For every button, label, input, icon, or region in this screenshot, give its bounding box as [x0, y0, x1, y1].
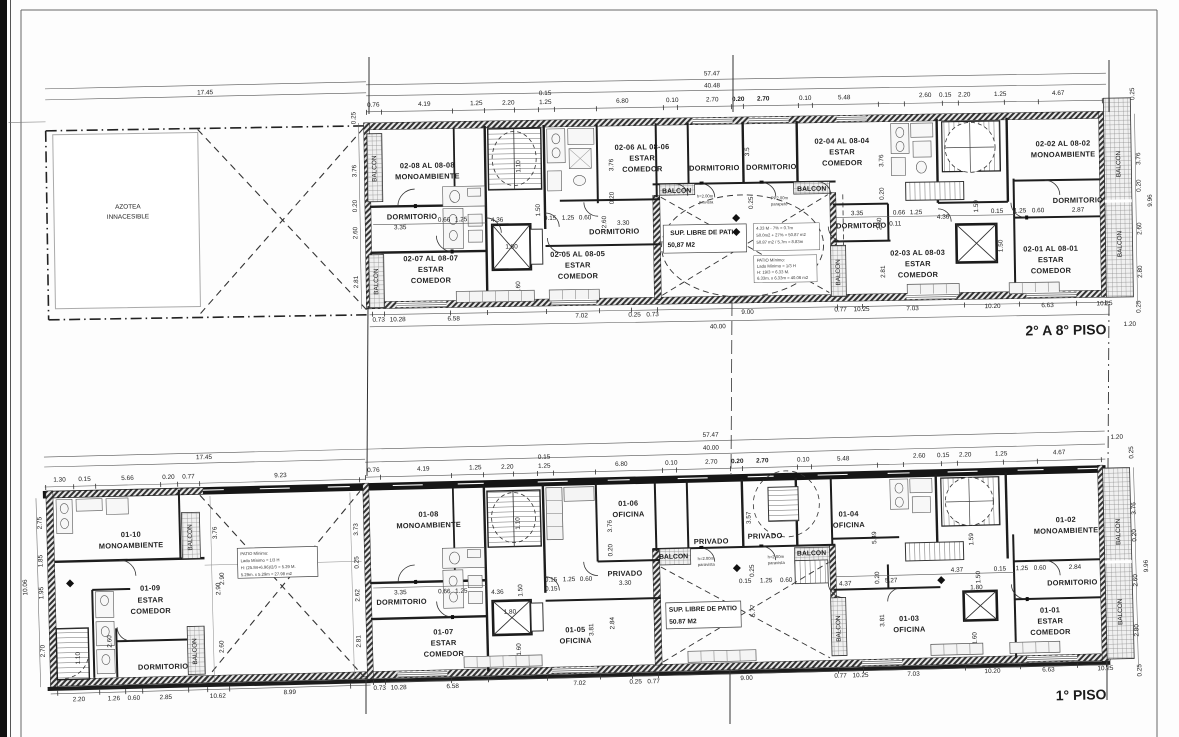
svg-text:PRIVADO: PRIVADO [694, 536, 729, 546]
svg-text:BALCON: BALCON [659, 553, 688, 561]
svg-text:1.50: 1.50 [997, 239, 1004, 252]
svg-text:2.60: 2.60 [1136, 222, 1143, 235]
svg-text:h=2.00m: h=2.00m [697, 193, 714, 198]
svg-text:H: 19/3 = 6.33 M.: H: 19/3 = 6.33 M. [757, 269, 789, 275]
svg-text:2.60: 2.60 [106, 635, 113, 648]
svg-text:3.30: 3.30 [617, 220, 630, 227]
svg-text:BALCON: BALCON [797, 186, 826, 193]
svg-text:2.80: 2.80 [1137, 265, 1144, 278]
svg-text:0.10: 0.10 [666, 97, 679, 104]
svg-text:0.15: 0.15 [991, 208, 1004, 215]
svg-text:1.20: 1.20 [1124, 321, 1137, 328]
svg-text:1.60: 1.60 [516, 643, 523, 656]
svg-text:4.37: 4.37 [951, 567, 964, 574]
svg-text:0.15: 0.15 [545, 576, 558, 583]
svg-text:50.0m2 + 27% = 50.87 m2: 50.0m2 + 27% = 50.87 m2 [756, 232, 806, 238]
svg-text:3.76: 3.76 [1135, 152, 1142, 165]
svg-text:0.20: 0.20 [731, 458, 744, 465]
svg-text:1.25: 1.25 [455, 216, 468, 223]
svg-text:0.77: 0.77 [647, 678, 660, 685]
svg-text:3.30: 3.30 [619, 580, 632, 587]
svg-text:1.59: 1.59 [968, 533, 975, 546]
svg-text:1.20: 1.20 [1110, 434, 1123, 441]
svg-text:0.60: 0.60 [1034, 565, 1047, 572]
svg-text:0.20: 0.20 [879, 187, 886, 200]
svg-text:57.47: 57.47 [704, 70, 721, 77]
svg-text:3.76: 3.76 [607, 519, 614, 532]
svg-text:SUP. LIBRE DE PATIO: SUP. LIBRE DE PATIO [670, 229, 738, 237]
svg-text:2° A 8° PISO: 2° A 8° PISO [1025, 321, 1106, 338]
svg-text:0.77: 0.77 [182, 473, 195, 480]
svg-text:3.81: 3.81 [588, 623, 595, 636]
svg-text:0.25: 0.25 [749, 564, 756, 577]
svg-text:0.25: 0.25 [628, 312, 641, 319]
svg-text:PATIO Mínimo:: PATIO Mínimo: [240, 551, 268, 557]
svg-text:1.59: 1.59 [973, 200, 980, 213]
svg-text:1.25: 1.25 [470, 100, 483, 107]
svg-text:2.20: 2.20 [502, 99, 515, 106]
svg-text:3.35: 3.35 [851, 210, 864, 217]
svg-text:1.80: 1.80 [970, 584, 983, 591]
svg-text:0.15: 0.15 [78, 476, 91, 483]
svg-text:OFICINA: OFICINA [559, 636, 592, 646]
svg-text:10.20: 10.20 [984, 668, 1001, 675]
svg-text:6.80: 6.80 [615, 461, 628, 468]
svg-text:0.10: 0.10 [799, 95, 812, 102]
svg-text:3.76: 3.76 [212, 526, 219, 539]
svg-text:1.10: 1.10 [515, 160, 522, 173]
svg-text:01-06: 01-06 [618, 499, 638, 508]
svg-text:1.10: 1.10 [515, 517, 522, 530]
svg-text:2.70: 2.70 [757, 95, 770, 102]
svg-text:ESTAR: ESTAR [905, 259, 931, 268]
svg-text:1.25: 1.25 [538, 463, 551, 470]
svg-text:10.62: 10.62 [210, 693, 227, 700]
svg-text:1.25: 1.25 [539, 99, 552, 106]
svg-text:paravista: paravista [768, 560, 786, 565]
svg-text:2.60: 2.60 [601, 215, 608, 228]
svg-text:3.57: 3.57 [745, 511, 752, 524]
svg-text:01-05: 01-05 [565, 625, 585, 634]
svg-text:DORMITORIO: DORMITORIO [376, 597, 427, 607]
svg-text:Lado Mínimo = 1/3 H: Lado Mínimo = 1/3 H [240, 557, 279, 563]
svg-text:2.60: 2.60 [913, 452, 926, 459]
svg-text:parapeto: parapeto [771, 201, 788, 206]
svg-text:10.25: 10.25 [854, 306, 871, 313]
svg-text:MONOAMBIENTE: MONOAMBIENTE [1034, 525, 1099, 536]
svg-text:9.00: 9.00 [741, 309, 754, 316]
svg-text:2.62: 2.62 [354, 589, 361, 602]
svg-text:COMEDOR: COMEDOR [1031, 266, 1072, 276]
svg-text:COMEDOR: COMEDOR [622, 164, 663, 174]
svg-text:2.20: 2.20 [958, 91, 971, 98]
svg-text:02-05 AL 08-05: 02-05 AL 08-05 [550, 249, 605, 259]
svg-text:1.85: 1.85 [37, 554, 44, 567]
svg-text:50.87 M2: 50.87 M2 [669, 618, 697, 626]
svg-text:0.25: 0.25 [1128, 446, 1135, 459]
svg-text:4.67: 4.67 [1053, 449, 1066, 456]
svg-text:BALCON: BALCON [373, 268, 380, 295]
svg-text:2.60: 2.60 [876, 217, 883, 230]
svg-text:OFICINA: OFICINA [893, 625, 926, 635]
svg-text:1.50: 1.50 [517, 584, 524, 597]
svg-text:3.76: 3.76 [878, 154, 885, 167]
svg-text:DORMITORIO: DORMITORIO [589, 227, 640, 237]
svg-text:1.25: 1.25 [994, 91, 1007, 98]
svg-text:h=2.00m: h=2.00m [768, 554, 785, 559]
svg-text:2.87: 2.87 [1072, 207, 1085, 214]
svg-text:1.25: 1.25 [760, 577, 773, 584]
svg-text:2.60: 2.60 [1132, 574, 1139, 587]
svg-text:2.60: 2.60 [218, 640, 225, 653]
svg-text:2.70: 2.70 [706, 96, 719, 103]
svg-text:0.73: 0.73 [646, 311, 659, 318]
svg-text:10.25: 10.25 [1096, 300, 1113, 307]
svg-text:0.15: 0.15 [545, 585, 558, 592]
svg-text:0.15: 0.15 [544, 215, 557, 222]
svg-text:0.20: 0.20 [874, 571, 881, 584]
svg-text:0.10: 0.10 [797, 456, 810, 463]
svg-text:0.60: 0.60 [579, 214, 592, 221]
svg-text:5.66: 5.66 [121, 475, 134, 482]
svg-text:PRIVADO: PRIVADO [607, 568, 642, 578]
svg-text:02-06 AL 08-06: 02-06 AL 08-06 [615, 142, 670, 152]
svg-text:5.49: 5.49 [871, 531, 878, 544]
svg-text:1.25: 1.25 [563, 576, 576, 583]
svg-text:0.20: 0.20 [1136, 179, 1143, 192]
svg-text:7.03: 7.03 [906, 305, 919, 312]
svg-text:2.81: 2.81 [353, 275, 360, 288]
svg-text:3.5: 3.5 [744, 147, 751, 156]
svg-text:COMEDOR: COMEDOR [424, 649, 465, 659]
svg-text:0.11: 0.11 [889, 220, 902, 227]
svg-text:1.25: 1.25 [910, 209, 923, 216]
svg-text:5.77: 5.77 [750, 604, 757, 617]
svg-text:4.19: 4.19 [418, 101, 431, 108]
svg-text:2.80: 2.80 [1133, 624, 1140, 637]
svg-text:2.81: 2.81 [880, 265, 887, 278]
svg-text:1.95: 1.95 [38, 586, 45, 599]
svg-text:ESTAR: ESTAR [418, 265, 444, 274]
svg-text:1.50: 1.50 [535, 203, 542, 216]
svg-text:DORMITORIO: DORMITORIO [689, 163, 740, 173]
svg-text:DORMITORIO: DORMITORIO [1053, 195, 1104, 205]
svg-text:6.80: 6.80 [616, 98, 629, 105]
svg-text:COMEDOR: COMEDOR [1030, 627, 1071, 637]
svg-text:01-03: 01-03 [899, 614, 919, 623]
svg-text:0.15: 0.15 [739, 578, 752, 585]
svg-text:BALCON: BALCON [835, 259, 842, 286]
svg-text:1.50: 1.50 [975, 570, 982, 583]
svg-text:ESTAR: ESTAR [431, 638, 457, 648]
svg-text:01-02: 01-02 [1056, 515, 1076, 524]
svg-text:BALCON: BALCON [1117, 598, 1125, 625]
svg-text:01-08: 01-08 [418, 509, 438, 518]
svg-text:0.77: 0.77 [834, 672, 847, 679]
svg-text:COMEDOR: COMEDOR [130, 606, 171, 616]
svg-text:6.63: 6.63 [1041, 302, 1054, 309]
svg-text:9.96: 9.96 [1143, 559, 1150, 572]
svg-text:50,87 M2: 50,87 M2 [667, 242, 695, 249]
svg-text:3.73: 3.73 [353, 523, 360, 536]
svg-text:BALCON: BALCON [187, 524, 195, 551]
svg-text:3.76: 3.76 [608, 158, 615, 171]
svg-text:BALCON: BALCON [1115, 150, 1122, 177]
svg-text:6.58: 6.58 [446, 683, 459, 690]
svg-text:8.99: 8.99 [283, 689, 296, 696]
svg-text:DORMITORIO: DORMITORIO [746, 162, 797, 172]
svg-text:10.28: 10.28 [390, 316, 407, 323]
svg-text:0.20: 0.20 [607, 543, 614, 556]
svg-text:10.06: 10.06 [22, 579, 29, 596]
svg-text:1.25: 1.25 [995, 450, 1008, 457]
svg-text:2.84: 2.84 [1069, 564, 1082, 571]
svg-text:3.76: 3.76 [1130, 502, 1137, 515]
svg-text:0.20: 0.20 [609, 191, 616, 204]
svg-text:0.66: 0.66 [438, 588, 451, 595]
svg-text:0.60: 0.60 [780, 577, 793, 584]
svg-text:7.02: 7.02 [573, 680, 586, 687]
svg-text:PRIVADO: PRIVADO [748, 531, 783, 541]
svg-text:3.81: 3.81 [879, 614, 886, 627]
svg-text:paravista: paravista [698, 562, 716, 567]
svg-text:01-01: 01-01 [1040, 605, 1060, 614]
svg-text:01-04: 01-04 [838, 509, 859, 519]
svg-text:10.25: 10.25 [1097, 665, 1114, 672]
svg-text:02-01 AL 08-01: 02-01 AL 08-01 [1023, 244, 1078, 254]
svg-text:4.19: 4.19 [417, 466, 430, 473]
svg-text:4.33 M - 7% = 0.7m: 4.33 M - 7% = 0.7m [756, 225, 793, 231]
svg-text:2.84: 2.84 [609, 616, 616, 629]
svg-text:0.25: 0.25 [629, 678, 642, 685]
svg-text:9.23: 9.23 [274, 472, 287, 479]
svg-text:17.45: 17.45 [196, 454, 213, 461]
svg-text:ESTAR: ESTAR [1038, 255, 1064, 264]
svg-text:BALCON: BALCON [1115, 518, 1123, 545]
svg-text:10.20: 10.20 [984, 303, 1001, 310]
svg-text:PATIO Mínimo:: PATIO Mínimo: [757, 257, 785, 262]
svg-text:MONOAMBIENTE: MONOAMBIENTE [396, 520, 461, 531]
svg-text:MONOAMBIENTE: MONOAMBIENTE [395, 171, 460, 181]
svg-text:0.25: 0.25 [350, 111, 357, 124]
svg-text:COMEDOR: COMEDOR [558, 271, 599, 281]
svg-text:ESTAR: ESTAR [1037, 616, 1063, 626]
svg-text:5.27: 5.27 [885, 577, 898, 584]
svg-text:3.76: 3.76 [351, 164, 358, 177]
svg-text:0.77: 0.77 [834, 306, 847, 313]
svg-text:h=2.00m: h=2.00m [698, 556, 715, 561]
svg-text:BALCON: BALCON [371, 155, 378, 182]
svg-text:2.85: 2.85 [160, 694, 173, 701]
svg-text:4.36: 4.36 [937, 214, 950, 221]
svg-text:1.26: 1.26 [108, 695, 121, 702]
svg-text:0.25: 0.25 [748, 196, 755, 209]
svg-text:02-07 AL 08-07: 02-07 AL 08-07 [403, 253, 458, 263]
svg-text:0.20: 0.20 [162, 474, 175, 481]
svg-text:01-09: 01-09 [140, 583, 160, 592]
svg-text:40.00: 40.00 [710, 323, 727, 330]
svg-text:6.33m. x 6.33m = 40.06 m2: 6.33m. x 6.33m = 40.06 m2 [757, 275, 809, 281]
svg-text:1.80: 1.80 [505, 243, 518, 250]
svg-text:2.70: 2.70 [756, 457, 769, 464]
svg-text:0.73: 0.73 [372, 317, 385, 324]
svg-text:9.00: 9.00 [740, 675, 753, 682]
svg-text:2.20: 2.20 [73, 696, 86, 703]
svg-text:PP2.00m: PP2.00m [771, 195, 789, 200]
svg-text:40.48: 40.48 [704, 82, 721, 89]
svg-text:BALCON: BALCON [797, 550, 826, 558]
svg-text:1.25: 1.25 [469, 464, 482, 471]
svg-text:9.96: 9.96 [1147, 194, 1154, 207]
svg-text:0.15: 0.15 [939, 92, 952, 99]
svg-text:2.60: 2.60 [352, 226, 359, 239]
svg-text:4.37: 4.37 [839, 580, 852, 587]
svg-text:DORMITORIO: DORMITORIO [138, 662, 189, 672]
svg-text:COMEDOR: COMEDOR [898, 270, 939, 280]
svg-text:0.15: 0.15 [539, 90, 552, 97]
svg-text:1.10: 1.10 [75, 651, 82, 664]
svg-text:0.60: 0.60 [580, 576, 593, 583]
svg-text:AZOTEA: AZOTEA [115, 203, 141, 210]
svg-text:ESTAR: ESTAR [629, 153, 655, 162]
svg-text:1° PISO: 1° PISO [1056, 686, 1107, 703]
svg-text:4.67: 4.67 [1052, 90, 1065, 97]
svg-text:OFICINA: OFICINA [833, 520, 866, 530]
svg-text:3.35: 3.35 [394, 224, 407, 231]
svg-text:01-07: 01-07 [433, 627, 453, 636]
svg-text:02-08 AL 08-08: 02-08 AL 08-08 [400, 160, 455, 170]
svg-text:OFICINA: OFICINA [612, 509, 645, 519]
svg-text:Lado Mínimo = 1/3 H: Lado Mínimo = 1/3 H [757, 263, 796, 269]
svg-text:1.30: 1.30 [53, 476, 66, 483]
svg-text:10.25: 10.25 [852, 672, 869, 679]
svg-text:3.35: 3.35 [394, 589, 407, 596]
svg-text:7.02: 7.02 [575, 312, 588, 319]
svg-text:BALCON: BALCON [835, 615, 843, 642]
svg-text:0.66: 0.66 [893, 209, 906, 216]
svg-text:BALCON: BALCON [1116, 230, 1123, 257]
svg-text:1.80: 1.80 [504, 609, 517, 616]
svg-text:1.25: 1.25 [455, 588, 468, 595]
svg-text:02-03 AL 08-03: 02-03 AL 08-03 [890, 248, 945, 258]
svg-text:BALCON: BALCON [191, 638, 199, 665]
svg-text:4.36: 4.36 [491, 589, 504, 596]
svg-text:0.73: 0.73 [373, 685, 386, 692]
svg-text:0.15: 0.15 [538, 454, 551, 461]
svg-text:INNACESIBLE: INNACESIBLE [107, 213, 149, 221]
svg-text:MONOAMBIENTE: MONOAMBIENTE [1031, 149, 1096, 159]
svg-text:40.00: 40.00 [703, 445, 720, 452]
svg-text:1.60: 1.60 [972, 632, 979, 645]
svg-text:2.81: 2.81 [355, 635, 362, 648]
svg-text:DORMITORIO: DORMITORIO [1047, 577, 1098, 587]
svg-text:0.10: 0.10 [665, 460, 678, 467]
svg-text:0.25: 0.25 [1135, 300, 1142, 313]
svg-text:0.15: 0.15 [937, 452, 950, 459]
svg-text:10.28: 10.28 [391, 684, 408, 691]
svg-text:2.90: 2.90 [215, 582, 222, 595]
svg-text:02-04 AL 08-04: 02-04 AL 08-04 [814, 136, 870, 146]
svg-text:0.25: 0.25 [353, 556, 360, 569]
svg-text:5.48: 5.48 [837, 455, 850, 462]
svg-text:6.58: 6.58 [447, 315, 460, 322]
svg-text:02-02 AL 08-02: 02-02 AL 08-02 [1035, 138, 1090, 148]
svg-text:2.20: 2.20 [501, 464, 514, 471]
svg-text:COMEDOR: COMEDOR [411, 276, 452, 286]
svg-text:ESTAR: ESTAR [138, 595, 164, 605]
svg-text:2.20: 2.20 [959, 451, 972, 458]
svg-text:17.45: 17.45 [197, 89, 214, 96]
svg-text:2.60: 2.60 [919, 92, 932, 99]
svg-text:6.63: 6.63 [1042, 666, 1055, 673]
svg-text:ESTAR: ESTAR [829, 147, 855, 156]
svg-text:2.70: 2.70 [40, 644, 47, 657]
svg-text:1.25: 1.25 [1016, 565, 1029, 572]
svg-text:0.66: 0.66 [438, 217, 451, 224]
svg-text:2.70: 2.70 [705, 459, 718, 466]
svg-text:57.47: 57.47 [703, 432, 720, 439]
svg-text:0.20: 0.20 [352, 199, 359, 212]
svg-text:0.15: 0.15 [994, 566, 1007, 573]
svg-text:7.03: 7.03 [907, 671, 920, 678]
svg-text:01-10: 01-10 [121, 530, 141, 539]
svg-text:5.48: 5.48 [838, 94, 851, 101]
svg-text:p.avista: p.avista [699, 199, 714, 204]
svg-text:0.76: 0.76 [367, 467, 380, 474]
svg-text:MONOAMBIENTE: MONOAMBIENTE [99, 540, 164, 551]
svg-text:2.75: 2.75 [36, 516, 43, 529]
svg-text:0.20: 0.20 [732, 96, 745, 103]
svg-text:1.25: 1.25 [562, 215, 575, 222]
svg-text:0.20: 0.20 [1131, 529, 1138, 542]
svg-text:50.87 m2 / 5.7m = 8.83m: 50.87 m2 / 5.7m = 8.83m [756, 239, 803, 245]
svg-text:COMEDOR: COMEDOR [822, 158, 863, 168]
svg-text:0.25: 0.25 [1136, 664, 1143, 677]
svg-text:ESTAR: ESTAR [565, 260, 591, 269]
svg-text:0.60: 0.60 [128, 695, 141, 702]
svg-text:0.60: 0.60 [1032, 207, 1045, 214]
svg-text:DORMITORIO: DORMITORIO [387, 212, 438, 222]
